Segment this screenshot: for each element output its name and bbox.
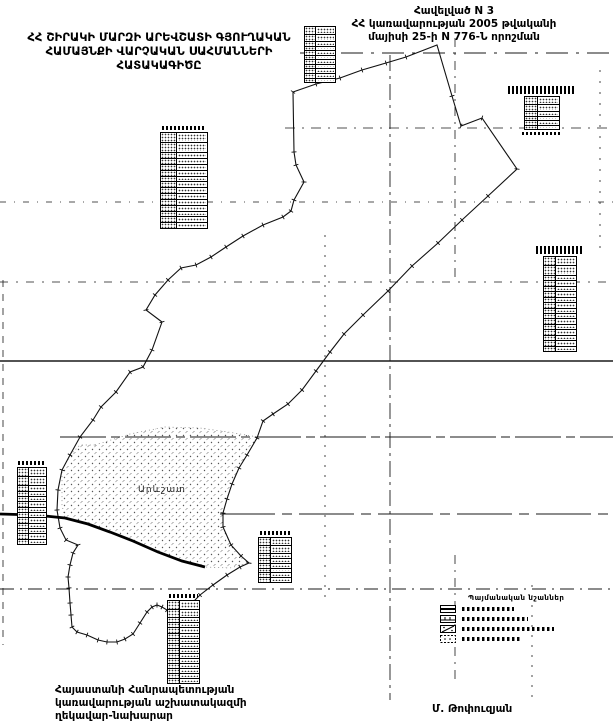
map-title-line: ՀՀ ՇԻՐԱԿԻ ՄԱՐԶԻ ԱՐԵՎՇԱՏԻ ԳՅՈՒՂԱԿԱՆ xyxy=(8,30,310,44)
table-cell xyxy=(272,574,290,576)
table-cell xyxy=(272,539,290,544)
table-cell xyxy=(181,665,198,667)
table-cell xyxy=(30,487,45,489)
table-cell xyxy=(30,535,45,537)
table-cell xyxy=(259,538,271,545)
table-cell xyxy=(30,519,45,521)
table-cell xyxy=(161,223,177,228)
table-cell xyxy=(557,267,575,273)
map-legend: Պայմանական նշաններ xyxy=(440,594,610,642)
table-cell xyxy=(557,348,575,350)
table-cell xyxy=(317,75,334,77)
table-row xyxy=(544,265,576,274)
table-cell xyxy=(317,36,334,41)
table-cell xyxy=(317,52,334,54)
table-caption xyxy=(508,86,576,94)
table-cell xyxy=(168,601,180,609)
table-cell xyxy=(178,218,206,221)
table-cell xyxy=(557,258,575,264)
appendix-line: Հավելված N 3 xyxy=(298,5,610,18)
table-cell xyxy=(30,493,45,495)
table-cell xyxy=(305,35,316,42)
table-cell xyxy=(317,66,334,68)
community-boundary-symbol-icon xyxy=(440,605,456,613)
table-cell xyxy=(18,477,29,485)
table-cell xyxy=(539,127,558,128)
data-table-upper-right xyxy=(524,96,560,130)
table-cell xyxy=(178,207,206,210)
data-table-upper-left xyxy=(160,132,208,229)
table-cell xyxy=(30,503,45,505)
table-cell xyxy=(317,48,334,50)
table-cell xyxy=(178,183,206,186)
data-table-center xyxy=(258,537,292,583)
table-cell xyxy=(557,331,575,333)
table-cell xyxy=(317,57,334,59)
table-row xyxy=(525,104,559,112)
table-row xyxy=(259,545,291,553)
table-cell xyxy=(181,650,198,652)
table-cell xyxy=(30,509,45,511)
table-cell xyxy=(30,530,45,532)
settlement-boundary-symbol-icon xyxy=(440,615,456,623)
table-cell xyxy=(317,61,334,63)
settlement-label: Արևշատ xyxy=(138,485,186,495)
legend-item xyxy=(440,625,610,632)
table-row xyxy=(18,539,46,544)
appendix-note: Հավելված N 3 ՀՀ կառավարության 2005 թվակա… xyxy=(298,5,610,44)
footer-line: կառավարության աշխատակազմի xyxy=(55,697,247,710)
table-cell xyxy=(30,469,45,475)
map-title-line: ՀԱՏԱԿԱԳԻԾԸ xyxy=(8,58,310,72)
appendix-line: մայիսի 25-ի N 776-Ն որոշման xyxy=(298,31,610,44)
table-cell xyxy=(181,645,198,647)
table-row xyxy=(161,133,207,142)
legend-label xyxy=(462,627,554,631)
table-cell xyxy=(30,478,45,484)
table-cell xyxy=(539,118,558,119)
table-cell xyxy=(557,310,575,312)
table-cell xyxy=(161,133,177,142)
table-row xyxy=(168,678,199,683)
legend-label xyxy=(462,607,514,611)
table-cell xyxy=(557,304,575,306)
legend-label xyxy=(462,637,520,641)
table-cell xyxy=(525,126,538,129)
table-cell xyxy=(181,629,198,631)
table-cell xyxy=(272,547,290,552)
table-caption xyxy=(169,594,198,598)
table-cell xyxy=(181,640,198,642)
table-cell xyxy=(178,195,206,198)
data-table-bottom xyxy=(167,600,200,684)
footer-authority: Հայաստանի Հանրապետության կառավարության ա… xyxy=(55,684,247,723)
table-cell xyxy=(557,282,575,284)
table-cell xyxy=(272,560,290,562)
data-table-right xyxy=(543,256,577,352)
data-table-top xyxy=(304,26,336,83)
table-cell xyxy=(557,326,575,328)
legend-label xyxy=(462,617,528,621)
table-cell xyxy=(272,555,290,557)
map-title: ՀՀ ՇԻՐԱԿԻ ՄԱՐԶԻ ԱՐԵՎՇԱՏԻ ԳՅՈՒՂԱԿԱՆ ՀԱՄԱՅ… xyxy=(8,30,310,72)
table-row xyxy=(544,257,576,265)
table-cell xyxy=(30,525,45,527)
table-cell xyxy=(181,655,198,657)
table-cell xyxy=(181,619,198,621)
table-cell xyxy=(181,635,198,637)
table-cell xyxy=(178,144,206,151)
legend-item xyxy=(440,605,610,612)
table-cell xyxy=(178,166,206,169)
map-title-line: ՀԱՄԱՅՆՔԻ ՎԱՐՉԱԿԱՆ ՍԱՀՄԱՆՆԵՐԻ xyxy=(8,44,310,58)
table-cell xyxy=(317,70,334,72)
table-cell xyxy=(181,602,198,608)
table-row xyxy=(259,577,291,582)
table-cell xyxy=(30,498,45,500)
table-caption xyxy=(162,126,206,130)
table-cell xyxy=(557,288,575,290)
table-row xyxy=(168,609,199,618)
table-cell xyxy=(317,43,334,45)
table-cell xyxy=(557,342,575,344)
table-caption xyxy=(260,531,290,535)
agricultural-land-symbol-icon xyxy=(440,635,456,643)
table-caption xyxy=(536,246,584,254)
table-caption xyxy=(18,461,46,465)
table-row xyxy=(544,346,576,351)
table-row xyxy=(161,142,207,152)
table-cell xyxy=(181,660,198,662)
table-row xyxy=(305,27,335,34)
table-row xyxy=(525,125,559,129)
table-cell xyxy=(557,277,575,279)
table-cell xyxy=(259,546,271,553)
table-cell xyxy=(181,670,198,672)
settlement-built-area-symbol-icon xyxy=(440,625,456,633)
table-cell xyxy=(557,320,575,322)
legend-title: Պայմանական նշաններ xyxy=(468,594,610,602)
data-table-left xyxy=(17,467,47,545)
table-row xyxy=(305,78,335,83)
settlement-area xyxy=(62,427,258,568)
table-cell xyxy=(539,122,558,123)
table-cell xyxy=(30,541,45,543)
legend-item xyxy=(440,615,610,622)
table-row xyxy=(305,34,335,42)
table-cell xyxy=(317,28,334,33)
table-row xyxy=(259,538,291,545)
table-cell xyxy=(181,680,198,682)
table-cell xyxy=(544,347,556,351)
table-cell xyxy=(305,27,316,34)
table-footer xyxy=(522,132,562,135)
table-cell xyxy=(544,257,556,265)
table-cell xyxy=(525,97,538,104)
table-cell xyxy=(557,299,575,301)
table-cell xyxy=(178,154,206,157)
table-cell xyxy=(305,79,316,83)
table-cell xyxy=(18,540,29,544)
table-cell xyxy=(18,468,29,476)
table-row xyxy=(525,97,559,104)
table-cell xyxy=(181,624,198,626)
table-cell xyxy=(178,213,206,216)
table-cell xyxy=(178,178,206,181)
table-cell xyxy=(168,610,180,618)
table-cell xyxy=(178,172,206,175)
scanned-map-page: Հավելված N 3 ՀՀ կառավարության 2005 թվակա… xyxy=(0,0,613,726)
table-cell xyxy=(168,679,180,683)
signature: Մ. Թոփուզյան xyxy=(432,703,512,715)
table-cell xyxy=(161,143,177,152)
table-cell xyxy=(544,266,556,274)
appendix-line: ՀՀ կառավարության 2005 թվականի xyxy=(298,18,610,31)
table-cell xyxy=(272,579,290,581)
table-cell xyxy=(178,189,206,192)
table-cell xyxy=(178,160,206,163)
table-cell xyxy=(557,337,575,339)
table-cell xyxy=(181,675,198,677)
table-cell xyxy=(525,105,538,112)
table-cell xyxy=(272,570,290,572)
table-cell xyxy=(178,224,206,227)
table-cell xyxy=(259,578,271,582)
table-row xyxy=(18,476,46,485)
table-cell xyxy=(557,315,575,317)
table-cell xyxy=(178,201,206,204)
table-cell xyxy=(30,514,45,516)
table-cell xyxy=(272,565,290,567)
table-cell xyxy=(181,611,198,617)
table-row xyxy=(168,601,199,609)
table-cell xyxy=(557,293,575,295)
footer-line: ղեկավար-նախարար xyxy=(55,710,247,723)
table-cell xyxy=(539,113,558,114)
table-cell xyxy=(539,106,558,111)
table-cell xyxy=(178,134,206,141)
legend-item xyxy=(440,635,610,642)
table-cell xyxy=(317,80,334,82)
table-row xyxy=(18,468,46,476)
table-row xyxy=(161,222,207,228)
table-cell xyxy=(539,98,558,103)
footer-line: Հայաստանի Հանրապետության xyxy=(55,684,247,697)
